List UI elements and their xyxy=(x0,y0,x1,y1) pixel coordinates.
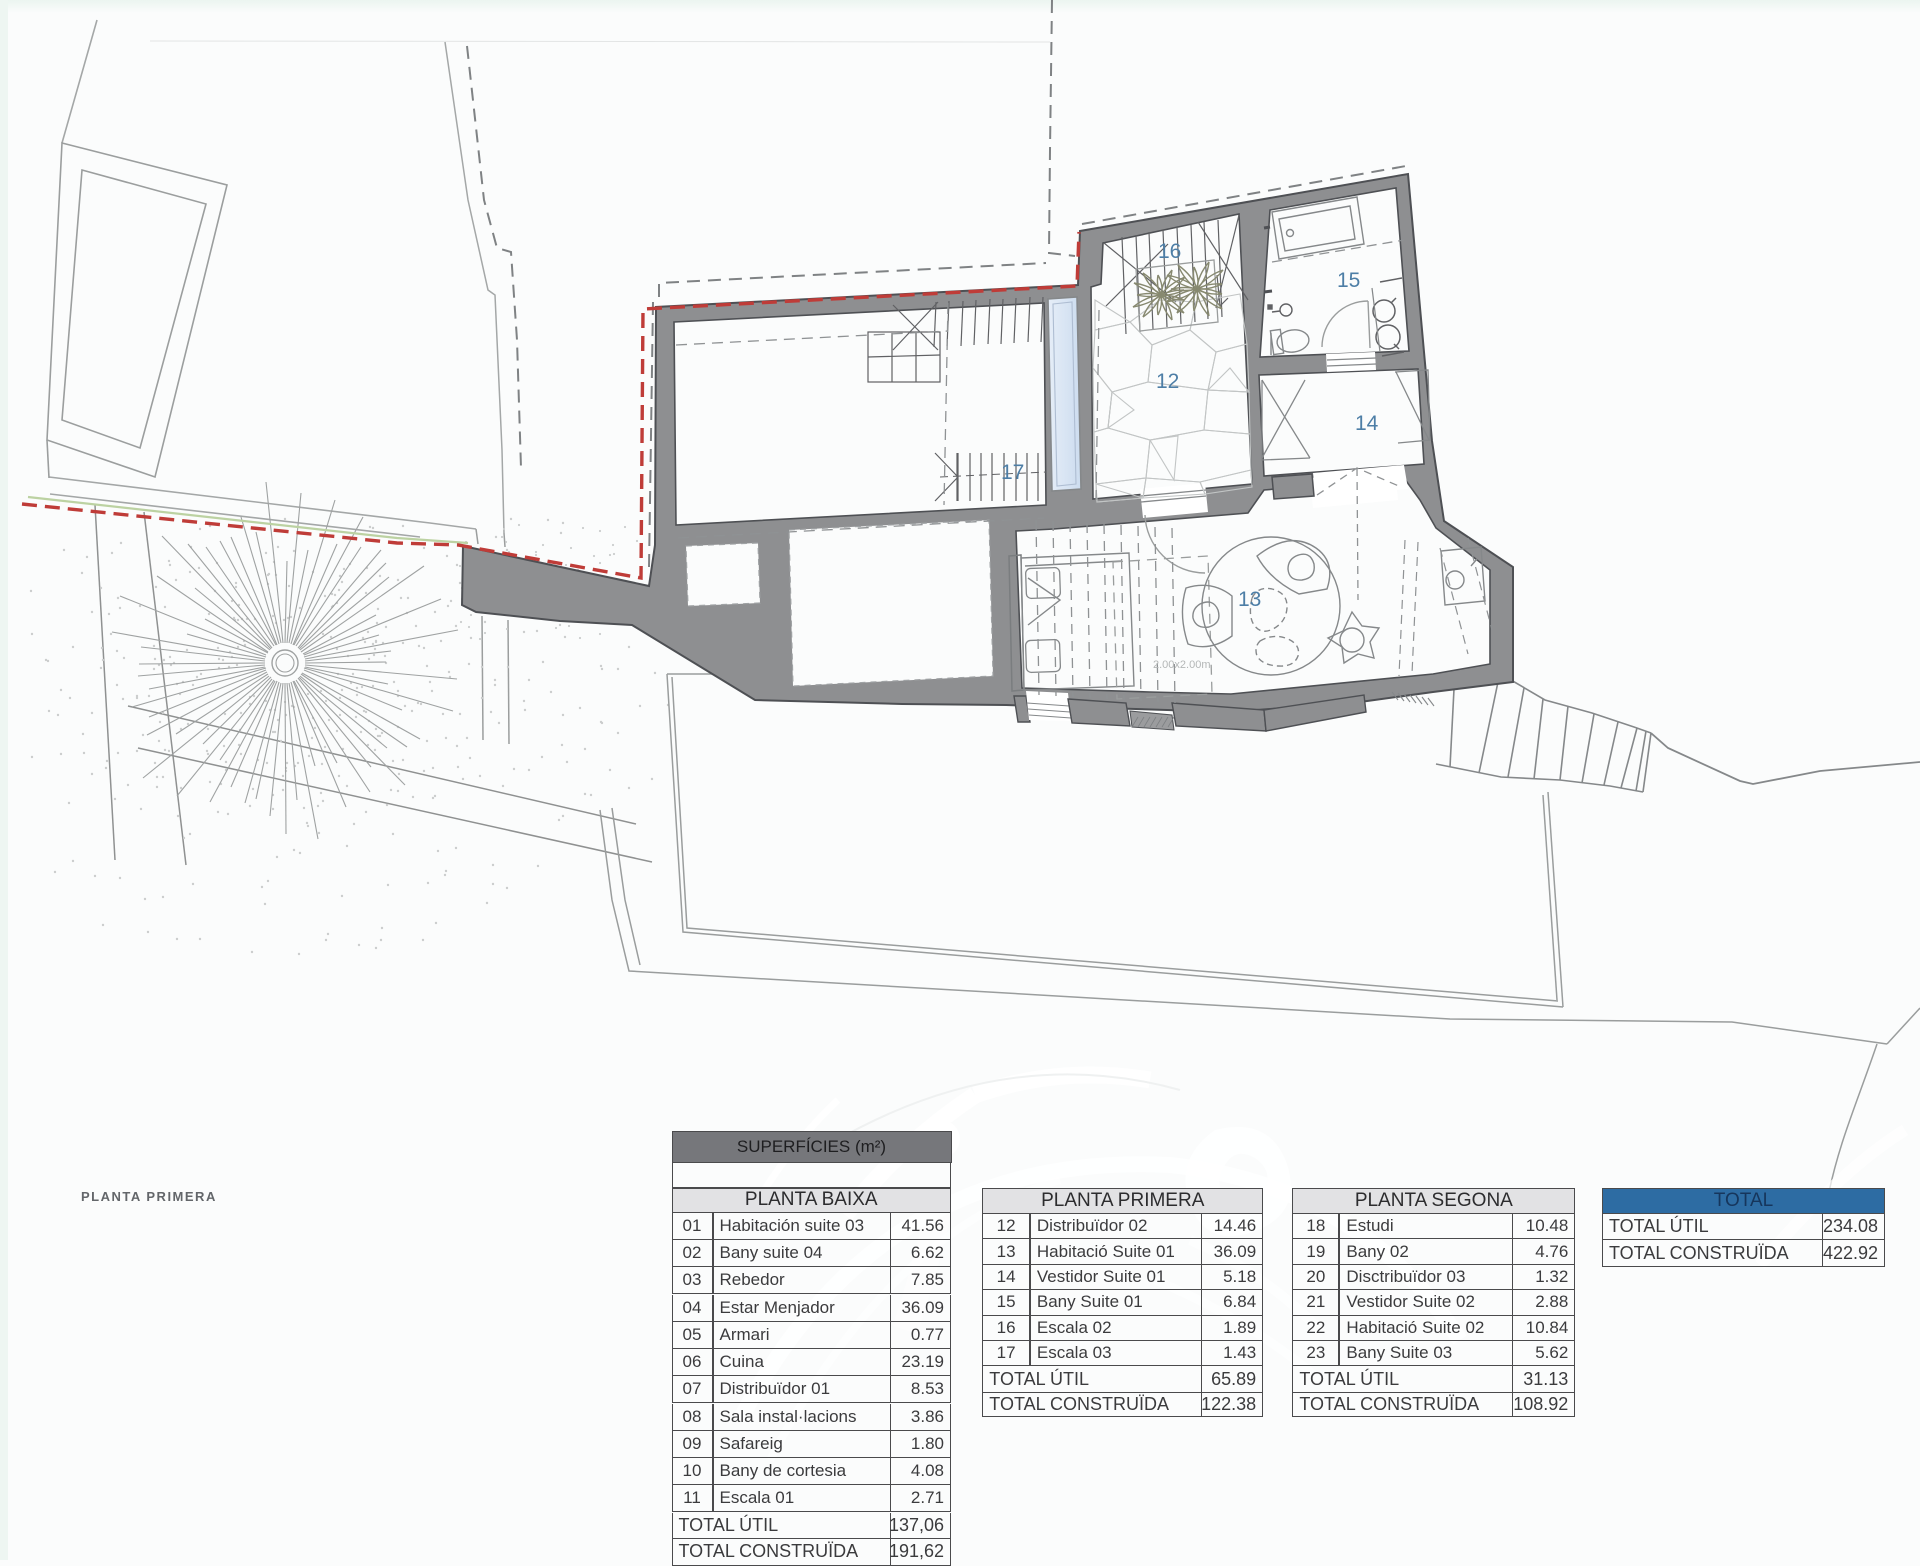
svg-text:16: 16 xyxy=(1158,240,1181,263)
svg-text:12: 12 xyxy=(1156,370,1179,393)
svg-text:14: 14 xyxy=(1355,412,1379,435)
svg-text:15: 15 xyxy=(1337,269,1360,292)
svg-text:13: 13 xyxy=(1238,588,1261,611)
svg-text:17: 17 xyxy=(1001,461,1024,484)
svg-text:2.00x2.00m: 2.00x2.00m xyxy=(1153,659,1210,671)
